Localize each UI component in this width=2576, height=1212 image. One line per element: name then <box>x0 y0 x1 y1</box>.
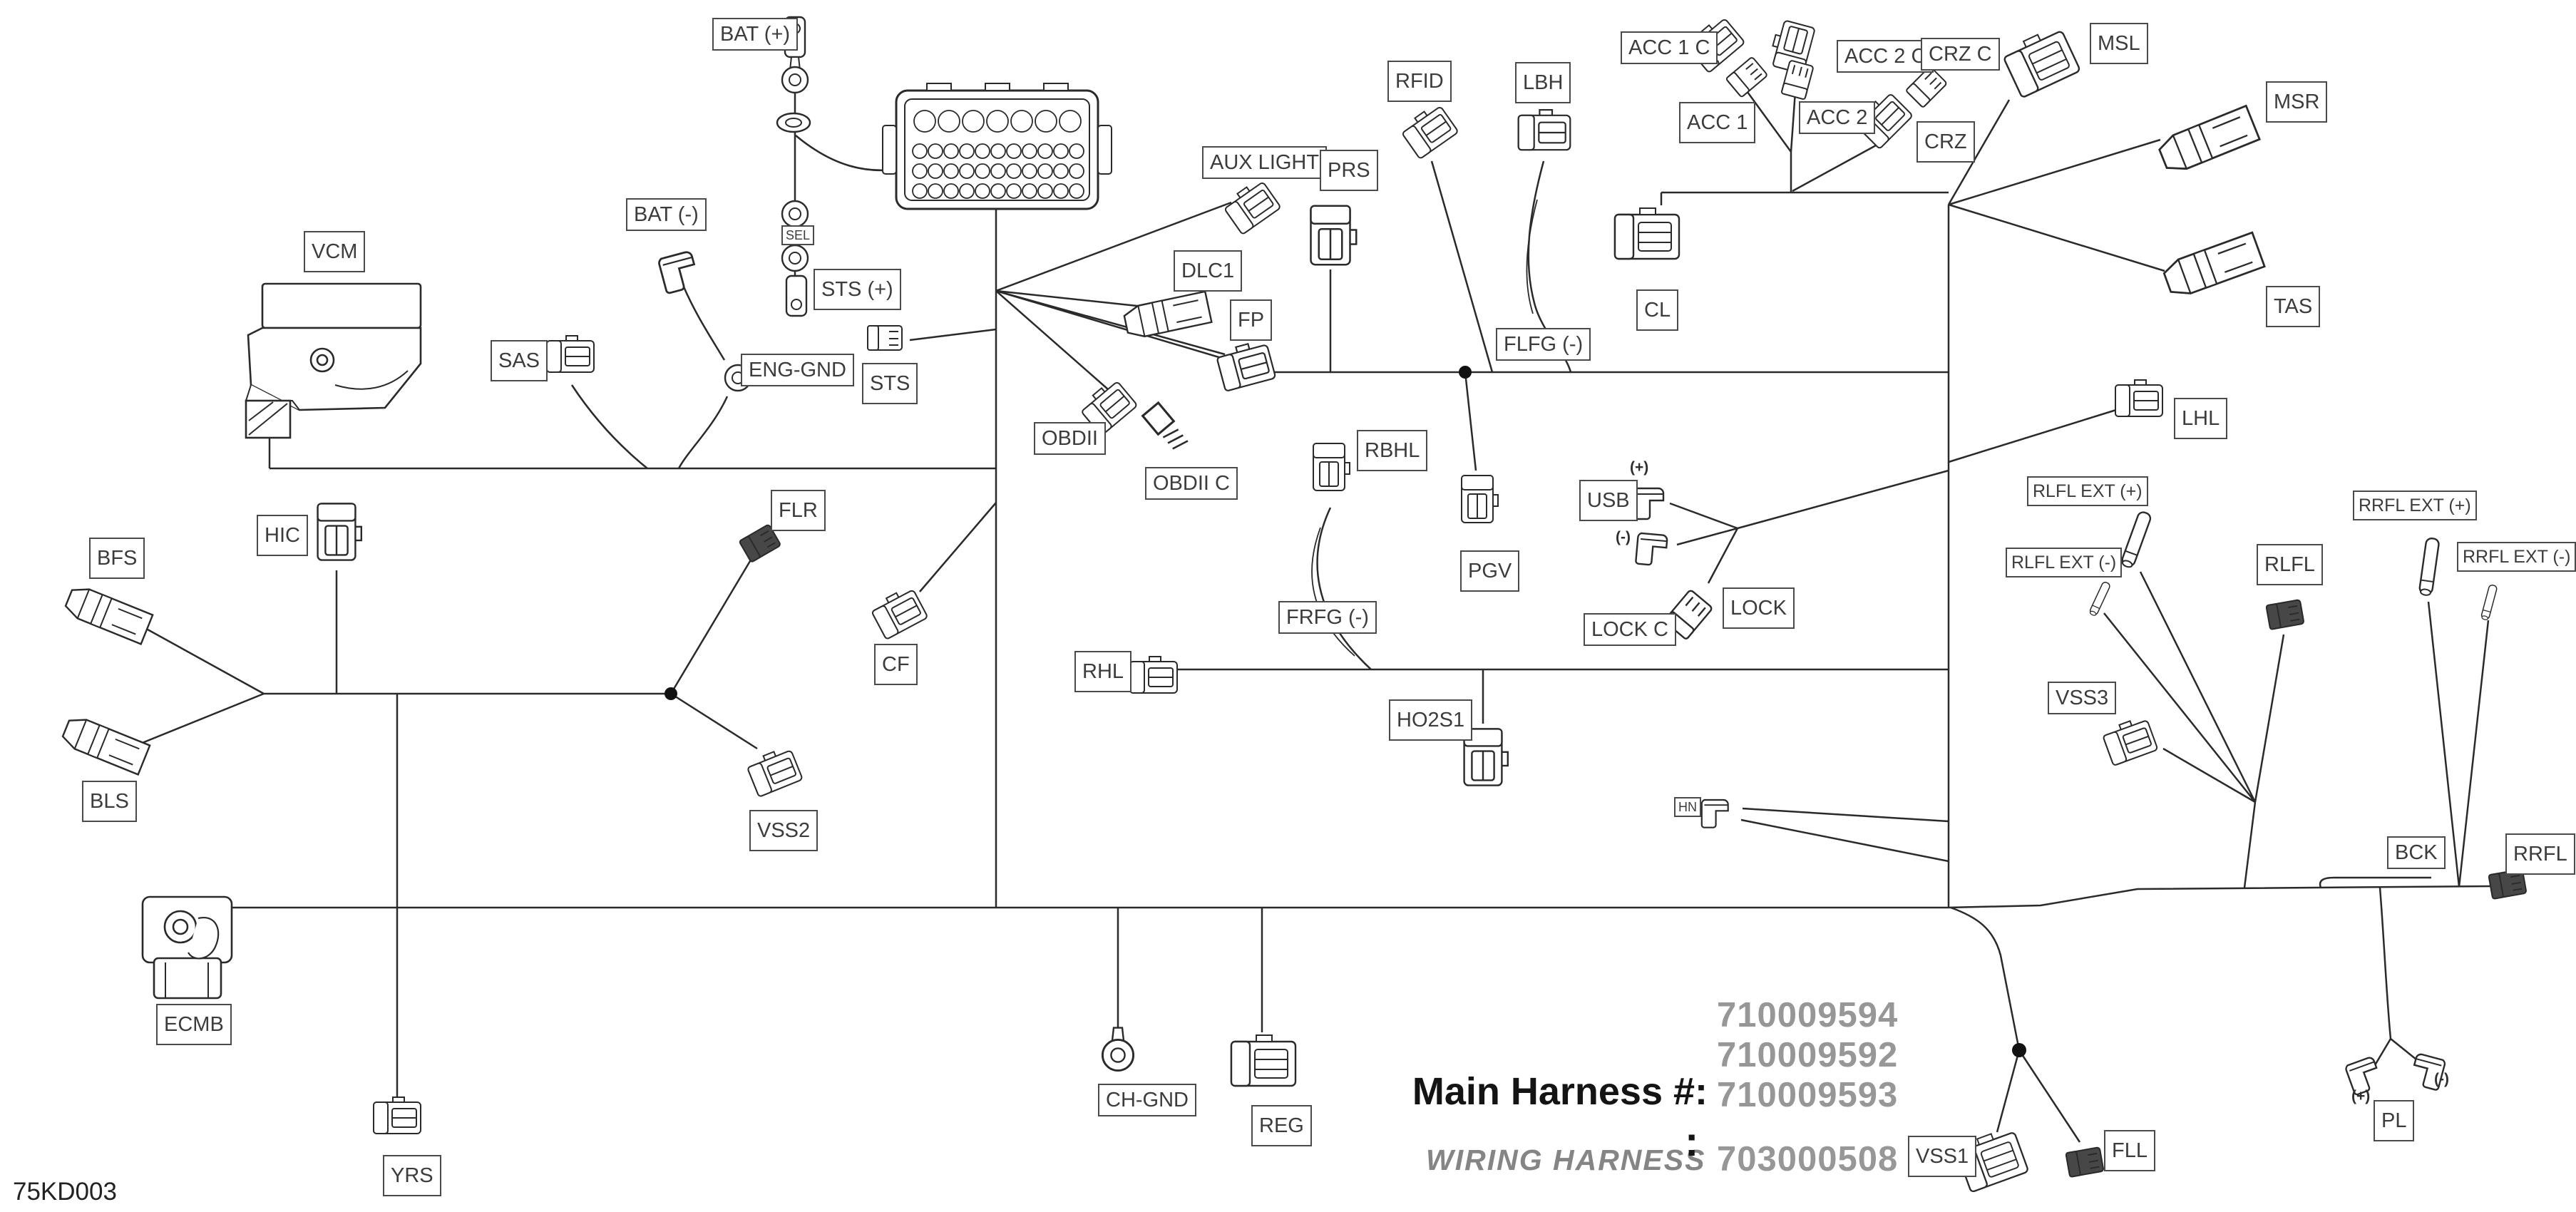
connector-icon <box>1221 178 1281 235</box>
label-hic: HIC <box>257 515 308 556</box>
label-rlfl-ext-plus: RLFL EXT (+) <box>2027 476 2148 506</box>
connector-icon <box>547 336 594 372</box>
label-rhl: RHL <box>1074 651 1132 692</box>
wiring-harness-colon: : <box>1685 1118 1698 1166</box>
connector-icon <box>1399 102 1458 159</box>
elbow-connector-icon <box>1636 533 1668 566</box>
cylinder-connector-icon <box>2088 581 2110 617</box>
connector-icon <box>869 585 928 640</box>
label-ecmb: ECMB <box>156 1004 232 1045</box>
main-connector-block-icon <box>883 83 1112 209</box>
label-acc-2-c: ACC 2 C <box>1837 40 1934 73</box>
label-bfs: BFS <box>89 538 145 579</box>
connector-icon <box>318 503 361 560</box>
label-obdii-c: OBDII C <box>1145 467 1238 500</box>
label-lbh: LBH <box>1515 62 1571 103</box>
label-bls: BLS <box>82 781 137 822</box>
connector-icon <box>1615 208 1679 259</box>
label-eng-gnd: ENG-GND <box>741 354 854 386</box>
label-rlfl: RLFL <box>2257 544 2323 585</box>
connector-icon <box>1462 476 1498 523</box>
label-lock: LOCK <box>1723 587 1795 629</box>
label-sas: SAS <box>491 340 548 381</box>
harness-number-4: 703000508 <box>1717 1139 1898 1179</box>
label-vcm: VCM <box>304 231 365 272</box>
junction-dot <box>1459 366 1472 379</box>
connector-icon <box>1216 339 1276 391</box>
connector-icon <box>1123 292 1212 340</box>
label-prs: PRS <box>1320 150 1378 191</box>
label-acc-1: ACC 1 <box>1679 102 1755 143</box>
elbow-connector-icon <box>1634 488 1663 519</box>
harness-number-3: 710009593 <box>1717 1075 1898 1115</box>
connector-icon <box>63 583 153 644</box>
cylinder-connector-icon <box>2120 510 2152 568</box>
vcm-component-icon <box>246 284 421 438</box>
label-obdii: OBDII <box>1034 422 1106 455</box>
connector-icon <box>1519 110 1571 150</box>
junction-dot <box>2012 1043 2026 1057</box>
ecmb-component-icon <box>143 897 232 998</box>
label-cl: CL <box>1636 289 1678 331</box>
label-fll: FLL <box>2104 1130 2155 1171</box>
label-acc-2: ACC 2 <box>1799 101 1875 134</box>
label-lock-c: LOCK C <box>1584 613 1676 646</box>
label-rfid: RFID <box>1387 61 1452 102</box>
harness-number-1: 710009594 <box>1717 995 1898 1035</box>
label-rrfl-ext-plus: RRFL EXT (+) <box>2353 491 2477 520</box>
elbow-connector-icon <box>1702 800 1728 828</box>
label-aux-light: AUX LIGHT <box>1202 146 1327 179</box>
connector-icon <box>374 1097 421 1134</box>
label-dlc1: DLC1 <box>1174 250 1242 292</box>
label-hn: HN <box>1674 797 1701 817</box>
label-yrs: YRS <box>383 1155 441 1196</box>
label-crz: CRZ <box>1916 121 1975 163</box>
connector-icon <box>1311 206 1357 265</box>
label-rrfl: RRFL <box>2505 833 2575 875</box>
connector-icon <box>2115 380 2162 416</box>
connector-icon <box>1231 1035 1295 1086</box>
wiring-harness-label: WIRING HARNESS <box>1426 1144 1672 1177</box>
connector-icon <box>1726 57 1768 98</box>
connector-icon <box>1313 443 1350 491</box>
label-acc-1-c: ACC 1 C <box>1621 31 1718 64</box>
label-frfg: FRFG (-) <box>1278 601 1377 634</box>
label-msr: MSR <box>2266 81 2327 123</box>
wire-runs <box>137 34 2492 1142</box>
harness-title: Main Harness #: <box>1408 1069 1708 1114</box>
connector-icon <box>2156 106 2259 175</box>
label-lhl: LHL <box>2174 398 2227 439</box>
connector-icon <box>2001 25 2080 98</box>
wire-bus-right <box>1948 886 2492 908</box>
label-reg: REG <box>1251 1105 1312 1146</box>
label-crz-c: CRZ C <box>1921 38 2000 71</box>
label-flr: FLR <box>771 490 826 531</box>
connector-icon <box>746 746 803 797</box>
cylinder-connector-icon <box>2480 585 2498 621</box>
label-ho2s1: HO2S1 <box>1389 699 1472 741</box>
connector-icon <box>2101 715 2157 765</box>
pl-minus-tag: (-) <box>2434 1071 2449 1088</box>
label-pgv: PGV <box>1460 550 1519 592</box>
label-bat-minus: BAT (-) <box>626 198 707 231</box>
cylinder-connector-icon <box>2419 538 2440 596</box>
connector-icon <box>1130 657 1177 693</box>
label-sts: STS <box>862 363 918 404</box>
ring-terminal-icon <box>782 57 808 93</box>
label-vss3: VSS3 <box>2048 682 2116 714</box>
washer-icon <box>777 113 810 132</box>
usb-plus-tag: (+) <box>1630 459 1648 476</box>
junction-dot <box>664 687 677 700</box>
wiring-diagram: BAT (+) BAT (-) STS (+) ENG-GND STS VCM … <box>0 0 2576 1212</box>
label-bck: BCK <box>2387 836 2446 869</box>
label-msl: MSL <box>2090 23 2148 64</box>
label-pl: PL <box>2374 1100 2414 1141</box>
label-sel-band: SEL <box>781 225 814 245</box>
usb-minus-tag: (-) <box>1616 529 1631 546</box>
connector-icon <box>2266 600 2304 630</box>
battery-lug-icon <box>786 276 806 316</box>
label-vss1: VSS1 <box>1908 1136 1976 1177</box>
label-ch-gnd: CH-GND <box>1098 1084 1196 1116</box>
label-sts-plus: STS (+) <box>814 269 901 310</box>
connector-icon <box>2066 1147 2103 1177</box>
pl-plus-tag: (+) <box>2351 1088 2370 1105</box>
label-rrfl-ext-minus: RRFL EXT (-) <box>2457 542 2576 572</box>
label-tas: TAS <box>2266 286 2320 327</box>
label-vss2: VSS2 <box>749 810 818 851</box>
label-usb: USB <box>1579 480 1638 521</box>
sheet-code: 75KD003 <box>13 1178 117 1206</box>
connector-icon <box>2161 232 2264 299</box>
label-rlfl-ext-minus: RLFL EXT (-) <box>2006 548 2122 577</box>
ring-terminal-icon <box>1102 1028 1133 1071</box>
elbow-terminal-icon <box>658 251 699 294</box>
label-rbhl: RBHL <box>1357 430 1427 471</box>
bolt-connector-icon <box>1143 403 1189 453</box>
label-cf: CF <box>874 644 918 685</box>
harness-number-2: 710009592 <box>1717 1035 1898 1075</box>
label-fp: FP <box>1230 299 1272 341</box>
label-flfg: FLFG (-) <box>1496 328 1591 361</box>
connector-icon <box>868 326 902 350</box>
connector-icon <box>60 714 150 774</box>
label-bat-plus: BAT (+) <box>712 18 798 51</box>
